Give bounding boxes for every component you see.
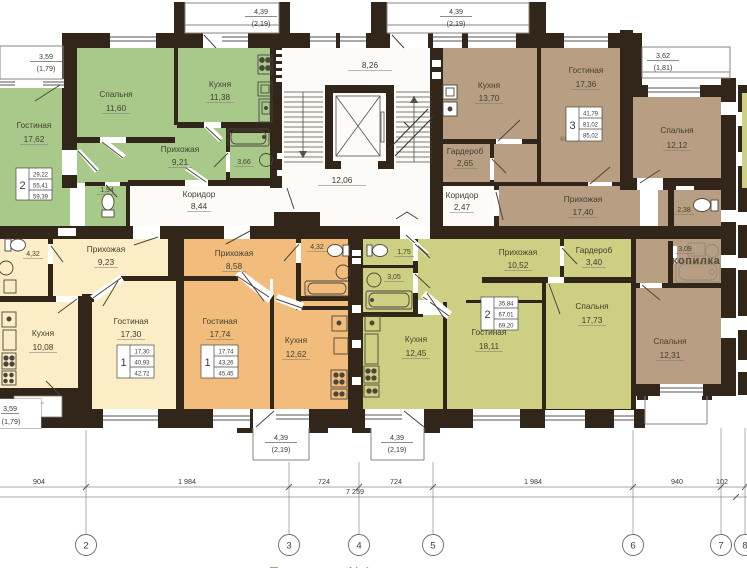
svg-text:3,40: 3,40 (586, 257, 603, 267)
svg-text:План этажа №1: План этажа №1 (269, 564, 372, 568)
svg-text:4,32: 4,32 (310, 244, 324, 251)
svg-text:12,62: 12,62 (286, 349, 307, 359)
svg-text:69,20: 69,20 (498, 324, 514, 330)
svg-text:81,02: 81,02 (583, 123, 599, 129)
svg-text:42,72: 42,72 (134, 372, 150, 378)
svg-text:Кухня: Кухня (405, 334, 427, 344)
svg-text:Коридор: Коридор (183, 189, 216, 199)
svg-text:Спальня: Спальня (660, 125, 693, 135)
svg-text:102: 102 (716, 477, 728, 486)
svg-text:копилка: копилка (672, 255, 721, 267)
svg-text:7: 7 (718, 541, 723, 552)
svg-text:7 259: 7 259 (346, 487, 364, 496)
svg-text:1: 1 (204, 357, 210, 369)
svg-text:Прихожая: Прихожая (87, 244, 125, 254)
svg-text:85,02: 85,02 (583, 134, 599, 140)
svg-text:724: 724 (390, 477, 402, 486)
svg-text:43,26: 43,26 (218, 361, 234, 367)
svg-text:8,58: 8,58 (226, 261, 243, 271)
svg-text:12,45: 12,45 (406, 348, 427, 358)
svg-text:3,09: 3,09 (678, 246, 692, 253)
svg-text:Кухня: Кухня (478, 80, 500, 90)
svg-text:(2,19): (2,19) (272, 445, 291, 454)
svg-text:17,36: 17,36 (576, 79, 597, 89)
svg-text:1 984: 1 984 (524, 477, 542, 486)
svg-text:18,11: 18,11 (479, 341, 500, 351)
svg-text:Гардероб: Гардероб (447, 146, 484, 156)
svg-text:(2,19): (2,19) (388, 445, 407, 454)
svg-text:17,74: 17,74 (218, 350, 234, 356)
svg-text:3: 3 (569, 120, 575, 132)
svg-text:940: 940 (671, 477, 683, 486)
svg-text:3,59: 3,59 (39, 52, 53, 61)
svg-text:Прихожая: Прихожая (499, 247, 537, 257)
svg-text:17,30: 17,30 (121, 329, 142, 339)
svg-text:(1,79): (1,79) (2, 417, 21, 426)
svg-text:4,39: 4,39 (274, 433, 288, 442)
svg-text:Кухня: Кухня (285, 335, 307, 345)
svg-text:Гардероб: Гардероб (576, 245, 613, 255)
svg-text:4,39: 4,39 (254, 7, 268, 16)
svg-text:17,40: 17,40 (573, 207, 594, 217)
svg-text:4,39: 4,39 (390, 433, 404, 442)
svg-text:6: 6 (630, 541, 635, 552)
svg-text:2,65: 2,65 (457, 158, 474, 168)
svg-text:17,62: 17,62 (24, 134, 45, 144)
svg-text:3,62: 3,62 (656, 51, 670, 60)
svg-text:41,79: 41,79 (583, 112, 599, 118)
svg-text:4,39: 4,39 (449, 7, 463, 16)
svg-text:8,44: 8,44 (191, 201, 208, 211)
svg-text:Коридор: Коридор (446, 190, 479, 200)
svg-text:3,59: 3,59 (3, 404, 17, 413)
svg-text:Прихожая: Прихожая (161, 144, 199, 154)
svg-text:Гостиная: Гостиная (203, 316, 238, 326)
svg-text:(1,81): (1,81) (654, 63, 673, 72)
svg-text:1: 1 (120, 357, 126, 369)
svg-text:1 984: 1 984 (178, 477, 196, 486)
svg-text:40,93: 40,93 (134, 361, 150, 367)
svg-text:45,45: 45,45 (218, 372, 234, 378)
svg-text:Спальня: Спальня (575, 301, 608, 311)
svg-text:2: 2 (19, 180, 25, 192)
svg-text:Гостиная: Гостиная (114, 316, 149, 326)
svg-text:2: 2 (83, 541, 88, 552)
svg-text:8: 8 (742, 541, 747, 552)
svg-text:17,30: 17,30 (134, 350, 150, 356)
svg-text:5: 5 (430, 541, 435, 552)
svg-text:2,38: 2,38 (677, 207, 691, 214)
svg-text:4: 4 (356, 541, 361, 552)
svg-text:17,74: 17,74 (210, 329, 231, 339)
svg-text:67,01: 67,01 (498, 313, 514, 319)
svg-text:(2,19): (2,19) (252, 19, 271, 28)
svg-text:13,70: 13,70 (479, 93, 500, 103)
svg-text:2,47: 2,47 (454, 202, 471, 212)
svg-text:1,75: 1,75 (397, 249, 411, 256)
svg-text:904: 904 (33, 477, 45, 486)
svg-text:9,23: 9,23 (98, 257, 115, 267)
svg-text:11,38: 11,38 (210, 92, 231, 102)
svg-text:3: 3 (286, 541, 291, 552)
svg-text:Спальня: Спальня (99, 89, 132, 99)
svg-text:10,52: 10,52 (508, 260, 529, 270)
svg-text:12,06: 12,06 (332, 175, 353, 185)
svg-text:8,26: 8,26 (362, 60, 379, 70)
svg-text:10,08: 10,08 (33, 342, 54, 352)
svg-text:59,39: 59,39 (33, 195, 49, 201)
svg-text:(2,19): (2,19) (447, 19, 466, 28)
svg-text:17,73: 17,73 (582, 315, 603, 325)
svg-text:2: 2 (484, 309, 490, 321)
svg-text:55,41: 55,41 (33, 184, 49, 190)
svg-text:12,31: 12,31 (660, 350, 681, 360)
svg-text:724: 724 (318, 477, 330, 486)
svg-text:29,22: 29,22 (33, 173, 49, 179)
svg-text:Спальня: Спальня (653, 336, 686, 346)
svg-text:35,84: 35,84 (498, 302, 514, 308)
svg-text:(1,79): (1,79) (37, 64, 56, 73)
svg-text:Гостиная: Гостиная (17, 120, 52, 130)
svg-text:11,60: 11,60 (106, 103, 127, 113)
svg-text:Прихожая: Прихожая (564, 194, 602, 204)
svg-text:4,32: 4,32 (26, 251, 40, 258)
svg-text:Кухня: Кухня (32, 328, 54, 338)
svg-text:9,21: 9,21 (172, 157, 189, 167)
svg-text:Прихожая: Прихожая (215, 248, 253, 258)
svg-text:Гостиная: Гостиная (569, 65, 604, 75)
svg-text:12,12: 12,12 (667, 140, 688, 150)
svg-text:1,94: 1,94 (100, 187, 114, 194)
svg-text:3,05: 3,05 (387, 274, 401, 281)
svg-text:Кухня: Кухня (209, 79, 231, 89)
svg-text:3,66: 3,66 (237, 159, 251, 166)
